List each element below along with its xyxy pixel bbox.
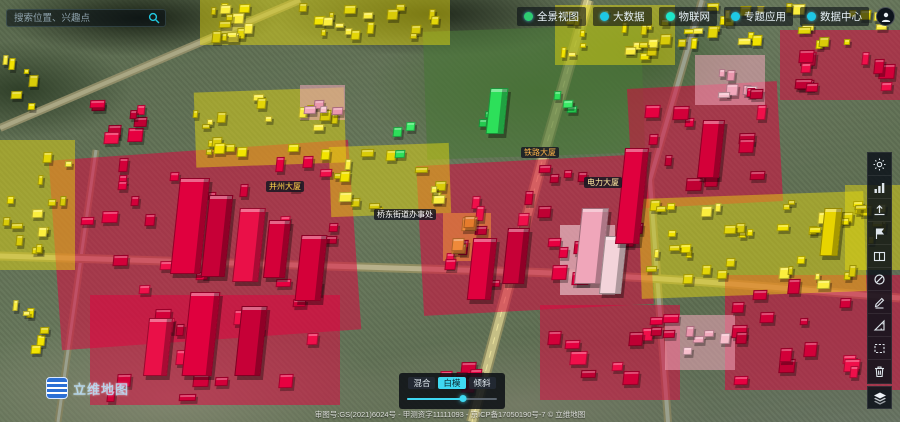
- measure-icon[interactable]: [868, 314, 891, 337]
- building: [444, 259, 456, 270]
- building: [211, 31, 221, 43]
- building: [220, 33, 227, 41]
- building: [451, 238, 465, 251]
- building: [351, 198, 361, 207]
- building: [475, 226, 488, 236]
- building: [682, 347, 692, 355]
- disable-rotate-icon[interactable]: [868, 268, 891, 291]
- building: [563, 100, 574, 109]
- building: [734, 376, 749, 385]
- building: [430, 16, 439, 25]
- building: [579, 30, 585, 37]
- building: [560, 47, 567, 58]
- building: [725, 258, 735, 267]
- map-label: 铁路大厦: [521, 147, 559, 158]
- building: [724, 225, 737, 235]
- mode-button-white-model[interactable]: 白模: [438, 377, 465, 389]
- building: [547, 331, 561, 345]
- nav-label: 物联网: [679, 9, 711, 24]
- select-area-icon[interactable]: [868, 337, 891, 360]
- building: [288, 143, 300, 151]
- building: [717, 92, 730, 98]
- logo-badge-icon: [46, 377, 68, 399]
- slider-handle[interactable]: [459, 395, 466, 402]
- building: [716, 270, 727, 279]
- building: [210, 7, 216, 15]
- user-avatar[interactable]: [876, 7, 895, 26]
- search-icon[interactable]: [148, 12, 160, 24]
- building: [732, 302, 745, 314]
- building: [350, 29, 360, 39]
- building: [844, 39, 851, 45]
- building: [565, 340, 581, 349]
- building: [406, 121, 416, 130]
- building: [213, 143, 225, 154]
- building: [220, 5, 232, 14]
- nav-label: 数据中心: [820, 9, 862, 24]
- building: [752, 290, 767, 300]
- mode-button-hybrid[interactable]: 混合: [408, 377, 435, 389]
- mode-buttons: 混合 白模 倾斜: [407, 377, 497, 389]
- building: [880, 82, 892, 92]
- map-tools-toolbar: [867, 152, 892, 384]
- building: [517, 213, 530, 227]
- building: [103, 132, 120, 145]
- building: [307, 333, 319, 345]
- building: [299, 3, 308, 12]
- building: [22, 311, 29, 316]
- building: [363, 12, 374, 19]
- building: [320, 149, 331, 160]
- building: [797, 255, 805, 263]
- building: [322, 17, 333, 26]
- building: [707, 26, 718, 38]
- nav-label: 全景视图: [537, 9, 579, 24]
- building: [387, 9, 399, 20]
- building: [80, 216, 94, 224]
- building: [343, 5, 355, 14]
- building: [659, 34, 671, 45]
- draw-pencil-icon[interactable]: [868, 291, 891, 314]
- clear-delete-icon[interactable]: [868, 360, 891, 383]
- building: [319, 106, 327, 114]
- building: [669, 245, 681, 251]
- building: [339, 171, 350, 183]
- building: [537, 206, 552, 219]
- building: [653, 249, 659, 258]
- building: [558, 247, 568, 258]
- building: [690, 38, 697, 49]
- building: [192, 110, 198, 118]
- map-label: 桥东街道办事处: [374, 209, 436, 220]
- building: [700, 206, 713, 217]
- building: [648, 39, 659, 48]
- building: [747, 229, 754, 236]
- building: [28, 74, 38, 86]
- building: [738, 139, 754, 153]
- building: [701, 264, 711, 274]
- iot-icon: [666, 12, 675, 21]
- building: [178, 394, 196, 401]
- building: [682, 274, 693, 284]
- building: [224, 144, 235, 152]
- building: [738, 38, 751, 45]
- thematic-apps-icon: [731, 12, 740, 21]
- building: [265, 116, 272, 122]
- data-center-icon: [807, 12, 816, 21]
- building: [644, 104, 660, 117]
- building: [581, 370, 597, 378]
- building: [464, 216, 476, 228]
- building: [552, 264, 569, 280]
- building: [798, 50, 815, 63]
- building: [43, 152, 53, 163]
- building: [3, 217, 11, 226]
- building: [569, 351, 587, 366]
- brightness-icon[interactable]: [868, 153, 891, 176]
- building: [667, 203, 675, 210]
- building: [415, 167, 428, 173]
- building: [214, 377, 228, 387]
- nav-item-thematic-apps[interactable]: 专题应用: [724, 7, 793, 26]
- building: [564, 170, 573, 178]
- building: [302, 156, 313, 168]
- building: [339, 192, 353, 202]
- building: [410, 33, 418, 39]
- building: [319, 169, 332, 178]
- building: [663, 330, 675, 339]
- building: [226, 32, 236, 38]
- map-label: 并州大厦: [266, 181, 304, 192]
- building: [237, 147, 248, 157]
- building: [524, 191, 534, 205]
- building: [332, 107, 344, 116]
- map-3d-viewport[interactable]: 并州大厦桥东街道办事处铁路大厦电力大厦 全景视图 大数据 物联网 专题应用: [0, 0, 900, 422]
- building: [750, 171, 766, 180]
- building: [735, 332, 747, 344]
- building: [32, 209, 44, 218]
- brand-logo: 立维地图: [46, 377, 129, 399]
- render-mode-panel: 混合 白模 倾斜: [399, 373, 505, 409]
- building: [369, 203, 381, 209]
- building: [202, 124, 210, 129]
- building: [89, 100, 105, 108]
- building: [787, 279, 801, 294]
- top-nav: 全景视图 大数据 物联网 专题应用 数据中心: [517, 7, 895, 26]
- building: [808, 227, 820, 233]
- building: [129, 110, 137, 119]
- building: [321, 29, 327, 36]
- search-bar[interactable]: [6, 9, 166, 27]
- building: [849, 366, 858, 378]
- building: [672, 105, 689, 119]
- building: [257, 98, 267, 109]
- building: [27, 103, 35, 110]
- nav-label: 专题应用: [744, 9, 786, 24]
- building: [366, 22, 375, 34]
- building: [692, 28, 702, 35]
- building: [580, 43, 587, 48]
- building: [704, 330, 715, 337]
- building: [715, 203, 722, 212]
- building: [800, 318, 808, 325]
- building: [692, 335, 704, 342]
- building: [538, 165, 550, 173]
- building: [7, 196, 15, 204]
- nav-label: 大数据: [613, 9, 645, 24]
- building: [678, 39, 687, 47]
- building: [628, 332, 643, 346]
- layers-icon[interactable]: [867, 386, 892, 409]
- building: [16, 234, 24, 245]
- building: [663, 314, 680, 323]
- building: [873, 59, 885, 75]
- building: [276, 279, 291, 287]
- building: [278, 374, 294, 388]
- building: [817, 279, 830, 288]
- building: [568, 52, 577, 58]
- blend-slider[interactable]: [407, 395, 497, 403]
- building: [623, 371, 640, 385]
- building: [776, 223, 789, 230]
- building: [841, 218, 849, 225]
- building: [145, 213, 156, 225]
- building: [48, 199, 57, 206]
- building: [219, 21, 232, 28]
- building: [668, 230, 676, 237]
- building: [216, 112, 226, 123]
- map-attribution: 审图号:GS(2021)6024号 - 甲测资字11111093 - 京ICP备…: [0, 409, 900, 420]
- submit-view-icon[interactable]: [868, 199, 891, 222]
- statistics-icon[interactable]: [868, 176, 891, 199]
- building: [751, 35, 762, 46]
- building: [395, 150, 406, 158]
- building: [639, 42, 649, 48]
- building: [800, 63, 811, 73]
- search-input[interactable]: [12, 12, 148, 25]
- mode-button-oblique[interactable]: 倾斜: [469, 377, 496, 389]
- building: [685, 326, 694, 337]
- building: [806, 83, 819, 92]
- building: [30, 345, 41, 354]
- building: [38, 227, 48, 237]
- building: [243, 23, 253, 34]
- building: [137, 105, 146, 115]
- building: [756, 104, 766, 119]
- building: [275, 157, 284, 172]
- split-screen-icon[interactable]: [868, 245, 891, 268]
- building: [101, 211, 118, 223]
- building: [117, 180, 127, 189]
- building: [335, 22, 345, 27]
- building: [131, 196, 140, 206]
- building: [550, 174, 560, 183]
- building: [393, 127, 403, 138]
- nav-item-panorama[interactable]: 全景视图: [517, 7, 586, 26]
- building: [431, 186, 438, 193]
- logo-watermark: 立维地图: [73, 379, 129, 398]
- building: [651, 327, 663, 336]
- building: [329, 223, 339, 232]
- nav-item-big-data[interactable]: 大数据: [593, 7, 652, 26]
- building: [649, 134, 659, 145]
- building: [138, 285, 150, 294]
- building: [719, 333, 730, 344]
- building: [239, 184, 248, 197]
- building: [59, 196, 66, 206]
- building: [24, 69, 30, 74]
- building: [750, 89, 764, 99]
- building: [169, 172, 179, 181]
- building: [788, 199, 795, 204]
- building: [798, 26, 812, 34]
- building: [780, 348, 794, 362]
- building: [36, 244, 43, 253]
- building: [127, 128, 143, 142]
- slider-fill: [407, 398, 463, 400]
- building: [36, 334, 45, 345]
- building: [803, 341, 818, 356]
- building: [10, 90, 22, 98]
- building: [736, 223, 746, 233]
- building: [625, 47, 636, 55]
- building: [65, 161, 72, 167]
- building: [312, 124, 324, 131]
- building: [685, 178, 703, 192]
- building: [239, 4, 250, 13]
- flag-mark-icon[interactable]: [868, 222, 891, 245]
- map-label: 电力大厦: [584, 177, 622, 188]
- building: [679, 244, 691, 253]
- big-data-icon: [600, 12, 609, 21]
- building: [118, 158, 128, 172]
- building: [718, 69, 725, 77]
- building: [840, 298, 852, 308]
- building: [656, 206, 667, 213]
- building: [361, 149, 375, 157]
- building: [726, 70, 735, 81]
- building: [759, 312, 774, 323]
- building: [554, 91, 562, 100]
- building: [226, 14, 234, 21]
- building: [855, 205, 867, 211]
- building: [40, 327, 49, 335]
- nav-item-iot[interactable]: 物联网: [659, 7, 718, 26]
- building: [611, 362, 622, 371]
- nav-item-data-center[interactable]: 数据中心: [800, 7, 869, 26]
- building: [112, 255, 128, 266]
- building: [303, 105, 316, 113]
- building: [10, 222, 23, 228]
- building: [645, 266, 657, 272]
- panorama-icon: [524, 12, 533, 21]
- building: [206, 149, 212, 155]
- building: [818, 37, 829, 47]
- building: [432, 194, 445, 203]
